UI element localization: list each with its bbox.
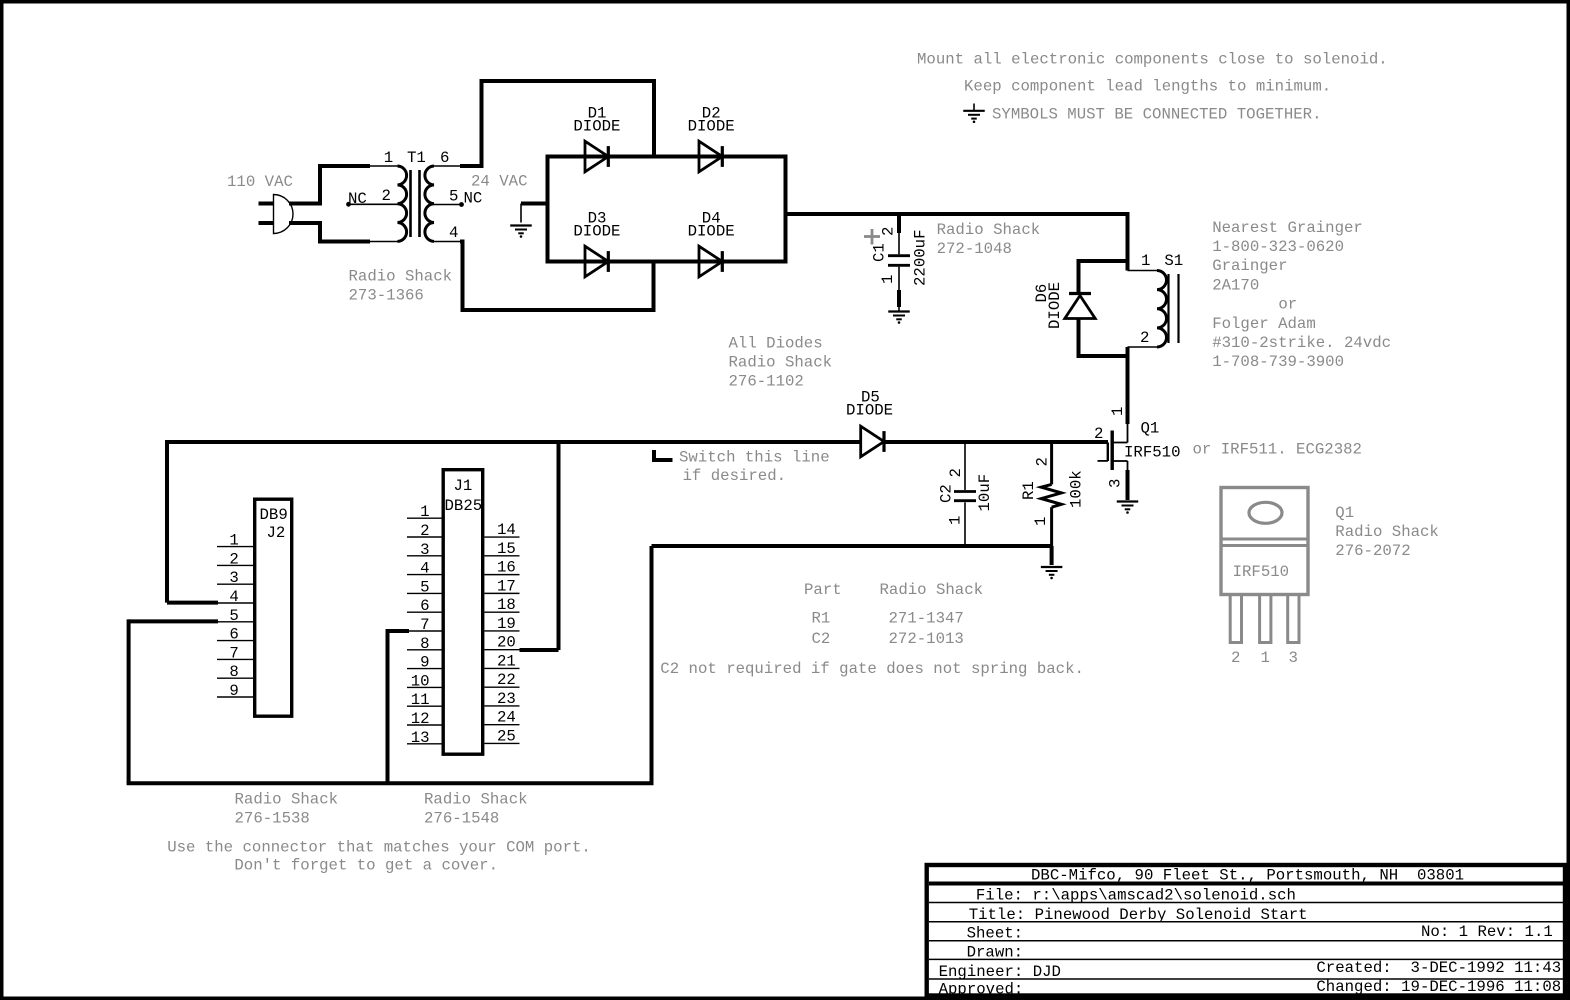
svg-text:272-1048: 272-1048 [937,240,1012,258]
svg-text:Switch this line: Switch this line [679,448,830,466]
svg-text:R1: R1 [1020,481,1038,500]
svg-text:Mount all electronic component: Mount all electronic components close to… [917,51,1388,69]
svg-text:5: 5 [420,578,429,596]
svg-text:Changed: 19-DEC-1996 11:08: Changed: 19-DEC-1996 11:08 [1316,978,1561,996]
svg-text:Radio Shack: Radio Shack [424,791,528,809]
svg-text:R1: R1 [812,609,831,627]
svg-text:25: 25 [497,727,516,745]
svg-text:2: 2 [1094,425,1103,443]
svg-text:24 VAC: 24 VAC [471,173,527,191]
svg-text:22: 22 [497,671,516,689]
svg-text:Don't forget to get a cover.: Don't forget to get a cover. [234,857,498,875]
svg-text:2: 2 [420,522,429,540]
svg-text:17: 17 [497,577,516,595]
svg-text:8: 8 [229,663,238,681]
svg-text:Part: Part [804,581,842,599]
svg-text:3: 3 [420,541,429,559]
svg-text:IRF510: IRF510 [1233,563,1289,581]
svg-text:8: 8 [420,635,429,653]
svg-text:3: 3 [229,569,238,587]
svg-text:or IRF511. ECG2382: or IRF511. ECG2382 [1193,441,1362,459]
svg-text:if desired.: if desired. [683,467,787,485]
svg-text:2: 2 [1231,649,1240,667]
svg-text:273-1366: 273-1366 [349,287,424,305]
svg-text:1: 1 [229,532,238,550]
svg-text:DB9: DB9 [260,506,288,524]
svg-text:Title: Pinewood Derby Solenoid: Title: Pinewood Derby Solenoid Start [969,906,1308,924]
svg-text:Drawn:: Drawn: [967,943,1023,961]
svg-text:All Diodes: All Diodes [729,335,823,353]
svg-text:Radio Shack: Radio Shack [235,791,339,809]
svg-text:C2: C2 [938,484,956,503]
svg-text:Grainger: Grainger [1212,257,1287,275]
svg-text:C2: C2 [812,630,831,648]
svg-text:13: 13 [411,729,430,747]
svg-text:2: 2 [382,187,391,205]
svg-text:Engineer: DJD: Engineer: DJD [939,963,1061,981]
svg-text:NC: NC [348,190,367,208]
svg-text:2: 2 [1140,329,1149,347]
svg-text:IRF510: IRF510 [1124,443,1180,461]
svg-text:2200uF: 2200uF [912,230,930,286]
svg-text:16: 16 [497,559,516,577]
svg-text:Use the connector that matches: Use the connector that matches your COM … [167,839,591,857]
svg-text:Radio Shack: Radio Shack [937,221,1041,239]
svg-text:5: 5 [229,607,238,625]
svg-text:9: 9 [229,682,238,700]
svg-text:#310-2strike. 24vdc: #310-2strike. 24vdc [1212,334,1391,352]
svg-text:NC: NC [464,190,483,208]
svg-text:Q1: Q1 [1335,504,1354,522]
svg-text:or: or [1278,296,1297,314]
svg-text:1: 1 [1261,649,1270,667]
svg-text:11: 11 [411,691,430,709]
svg-text:1: 1 [1141,252,1150,270]
svg-text:Sheet:: Sheet: [967,925,1023,943]
svg-text:S1: S1 [1164,252,1183,270]
svg-text:24: 24 [497,709,516,727]
svg-text:1: 1 [384,149,393,167]
svg-text:12: 12 [411,710,430,728]
svg-text:18: 18 [497,596,516,614]
svg-text:276-2072: 276-2072 [1335,542,1410,560]
svg-text:DIODE: DIODE [573,223,620,241]
svg-text:20: 20 [497,634,516,652]
svg-text:7: 7 [229,644,238,662]
svg-text:276-1102: 276-1102 [729,373,804,391]
svg-text:276-1548: 276-1548 [424,810,499,828]
svg-text:1: 1 [1032,517,1050,526]
svg-text:6: 6 [420,597,429,615]
svg-text:23: 23 [497,690,516,708]
svg-text:2: 2 [947,468,965,477]
svg-text:Radio Shack: Radio Shack [349,268,453,286]
svg-text:1: 1 [420,503,429,521]
svg-text:1-708-739-3900: 1-708-739-3900 [1212,353,1344,371]
svg-text:1: 1 [879,275,897,284]
svg-text:C2 not required if gate does n: C2 not required if gate does not spring … [660,660,1084,678]
svg-text:Keep component lead lengths to: Keep component lead lengths to minimum. [964,78,1331,96]
svg-text:Folger Adam: Folger Adam [1212,315,1316,333]
svg-text:DIODE: DIODE [1046,282,1064,329]
svg-text:10: 10 [411,672,430,690]
svg-text:2: 2 [1034,457,1052,466]
svg-text:T1: T1 [407,149,426,167]
svg-text:5: 5 [449,188,458,206]
svg-text:21: 21 [497,652,516,670]
svg-text:1-800-323-0620: 1-800-323-0620 [1212,238,1344,256]
svg-text:Radio Shack: Radio Shack [729,354,833,372]
svg-text:J1: J1 [454,477,473,495]
svg-text:DB25: DB25 [445,497,483,515]
svg-text:1: 1 [947,516,965,525]
svg-text:Radio Shack: Radio Shack [880,581,984,599]
svg-text:3: 3 [1289,649,1298,667]
svg-text:Radio Shack: Radio Shack [1335,523,1439,541]
svg-text:4: 4 [449,224,458,242]
svg-text:DBC-Mifco, 90 Fleet St., Ports: DBC-Mifco, 90 Fleet St., Portsmouth, NH … [1031,867,1464,885]
svg-text:272-1013: 272-1013 [889,630,964,648]
svg-text:C1: C1 [871,243,889,262]
svg-text:4: 4 [229,588,238,606]
svg-text:Nearest Grainger: Nearest Grainger [1212,219,1363,237]
svg-text:100k: 100k [1068,470,1086,508]
svg-text:J2: J2 [267,524,286,542]
svg-text:4: 4 [420,560,429,578]
svg-text:110 VAC: 110 VAC [227,173,293,191]
svg-text:14: 14 [497,521,516,539]
svg-text:3: 3 [1107,479,1125,488]
svg-text:276-1538: 276-1538 [235,810,310,828]
svg-text:Created: 3-DEC-1992 11:43: Created: 3-DEC-1992 11:43 [1316,959,1561,977]
svg-text:DIODE: DIODE [688,118,735,136]
svg-text:6: 6 [229,626,238,644]
svg-text:Approved:: Approved: [939,981,1024,999]
svg-text:271-1347: 271-1347 [889,609,964,627]
svg-text:2A170: 2A170 [1212,276,1259,294]
svg-text:9: 9 [420,654,429,672]
svg-text:7: 7 [420,616,429,634]
svg-text:15: 15 [497,540,516,558]
svg-text:File: r:\apps\amscad2\solenoid: File: r:\apps\amscad2\solenoid.sch [976,886,1296,904]
svg-text:No: 1 Rev: 1.1: No: 1 Rev: 1.1 [1421,923,1553,941]
svg-text:2: 2 [229,550,238,568]
svg-text:Q1: Q1 [1141,420,1160,438]
svg-text:10uF: 10uF [976,474,994,512]
svg-text:6: 6 [440,149,449,167]
svg-text:DIODE: DIODE [846,402,893,420]
svg-text:1: 1 [1109,407,1127,416]
svg-text:2: 2 [880,227,898,236]
svg-text:DIODE: DIODE [688,223,735,241]
svg-text:DIODE: DIODE [573,118,620,136]
svg-text:SYMBOLS MUST BE CONNECTED TOGE: SYMBOLS MUST BE CONNECTED TOGETHER. [992,106,1322,124]
svg-text:19: 19 [497,615,516,633]
